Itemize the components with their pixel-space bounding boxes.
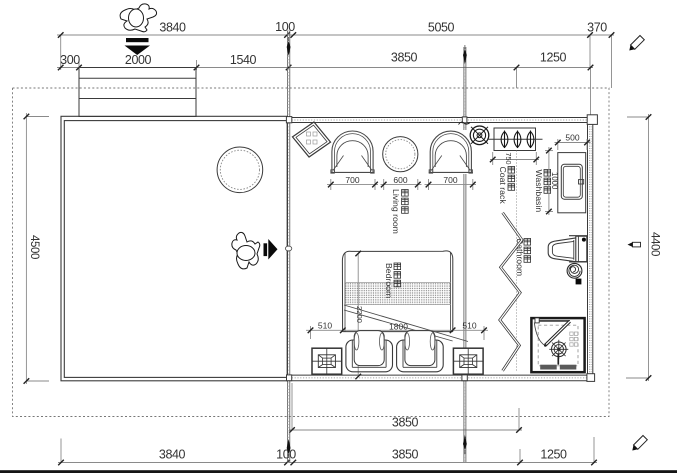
svg-text:4400: 4400 [649, 232, 661, 256]
svg-text:Bedroom: Bedroom [384, 263, 394, 298]
svg-text:Coat rack: Coat rack [498, 167, 508, 205]
svg-text:510: 510 [462, 320, 476, 330]
svg-text:3850: 3850 [392, 416, 419, 430]
svg-text:700: 700 [443, 175, 457, 185]
svg-text:600: 600 [393, 175, 407, 185]
svg-text:370: 370 [587, 21, 607, 35]
svg-text:1000: 1000 [550, 172, 559, 190]
svg-text:100: 100 [276, 448, 296, 462]
svg-text:3840: 3840 [159, 448, 186, 462]
svg-text:Living room: Living room [391, 189, 401, 234]
svg-text:2000: 2000 [125, 53, 152, 67]
svg-text:300: 300 [60, 53, 80, 67]
svg-text:3850: 3850 [392, 448, 419, 462]
svg-text:510: 510 [318, 320, 332, 330]
svg-text:700: 700 [345, 175, 359, 185]
svg-text:4500: 4500 [28, 235, 40, 259]
svg-text:1540: 1540 [230, 53, 257, 67]
svg-text:2200: 2200 [355, 306, 364, 323]
svg-text:3840: 3840 [159, 21, 186, 35]
svg-text:500: 500 [565, 133, 579, 143]
svg-text:750: 750 [504, 153, 513, 165]
svg-text:1250: 1250 [540, 51, 567, 65]
svg-text:Washbasin: Washbasin [534, 170, 544, 213]
svg-text:100: 100 [275, 20, 295, 34]
svg-text:1250: 1250 [540, 448, 567, 462]
svg-text:3850: 3850 [391, 51, 418, 65]
svg-text:1800: 1800 [389, 321, 408, 331]
svg-text:5050: 5050 [428, 21, 455, 35]
